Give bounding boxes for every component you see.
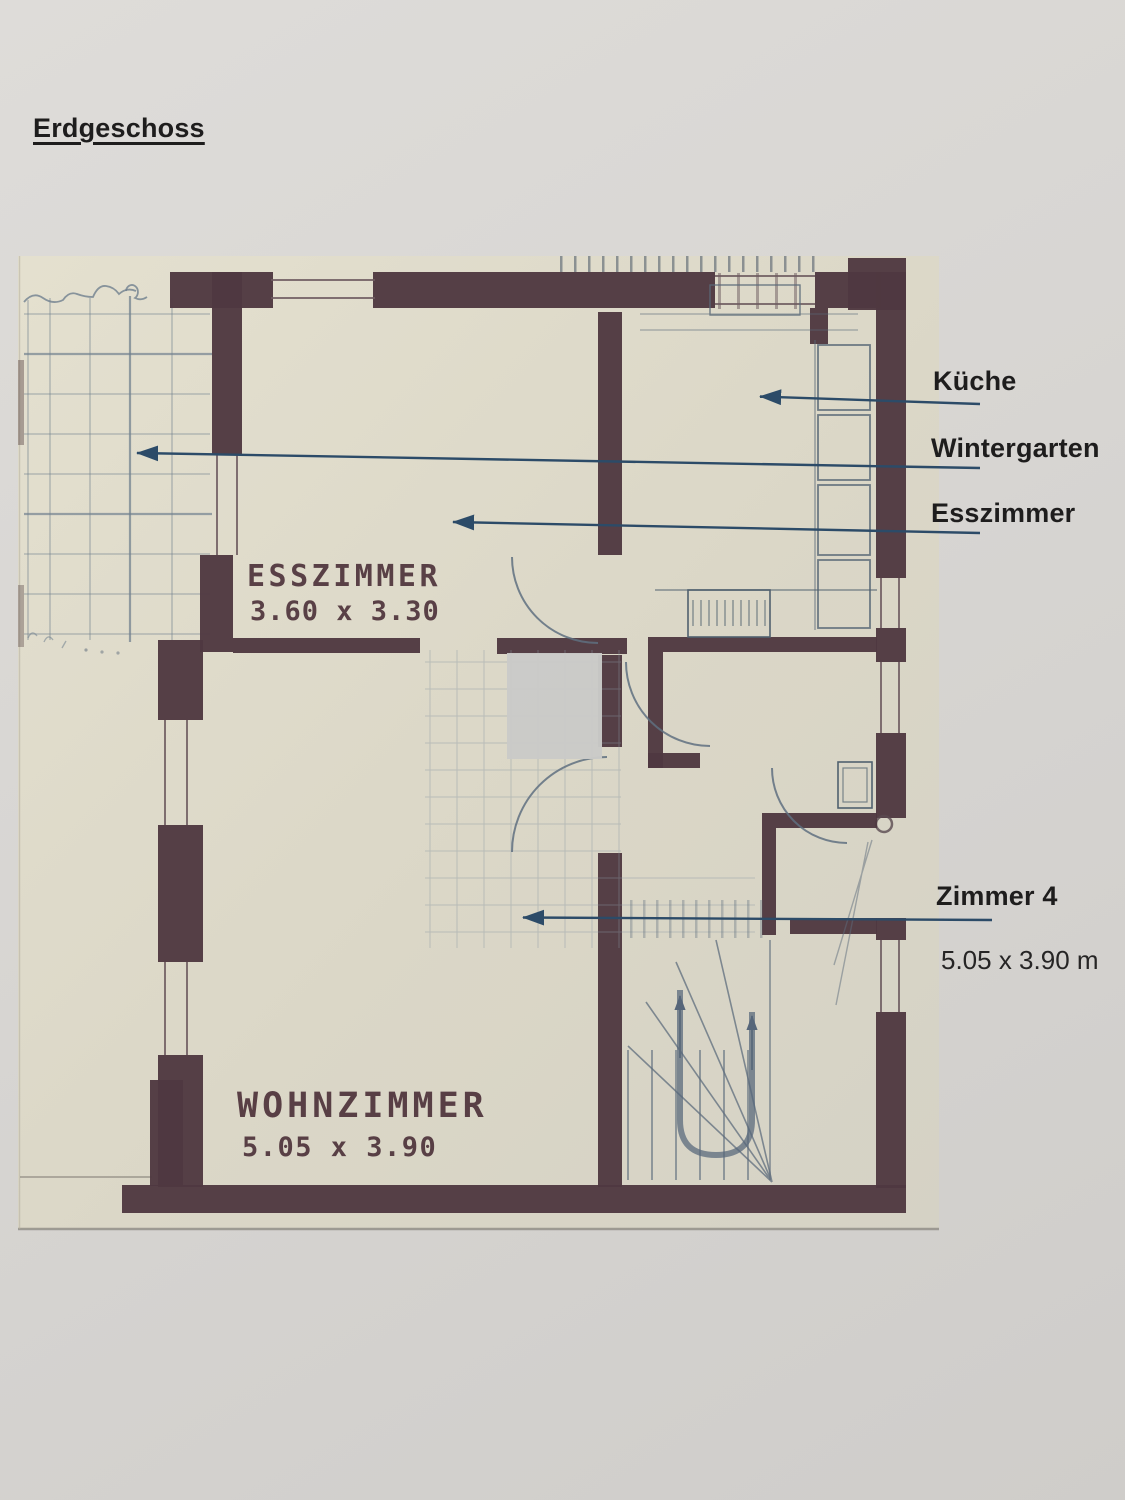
room-size-esszimmer: 3.60 x 3.30 — [250, 596, 440, 627]
callout-dimensions-zimmer4: 5.05 x 3.90 m — [941, 945, 1099, 976]
room-label-esszimmer: ESSZIMMER — [247, 559, 441, 594]
callout-label-wintergarten: Wintergarten — [931, 433, 1100, 464]
callout-label-zimmer4: Zimmer 4 — [936, 881, 1058, 912]
callout-label-esszimmer: Esszimmer — [931, 498, 1075, 529]
room-label-wohnzimmer: WOHNZIMMER — [237, 1086, 488, 1126]
scan-patch — [507, 653, 602, 759]
floor-plan-scan: ESSZIMMER 3.60 x 3.30 WOHNZIMMER 5.05 x … — [0, 0, 1125, 1500]
document-page: Erdgeschoss — [0, 0, 1125, 1500]
room-size-wohnzimmer: 5.05 x 3.90 — [242, 1132, 437, 1163]
callout-label-kueche: Küche — [933, 366, 1017, 397]
